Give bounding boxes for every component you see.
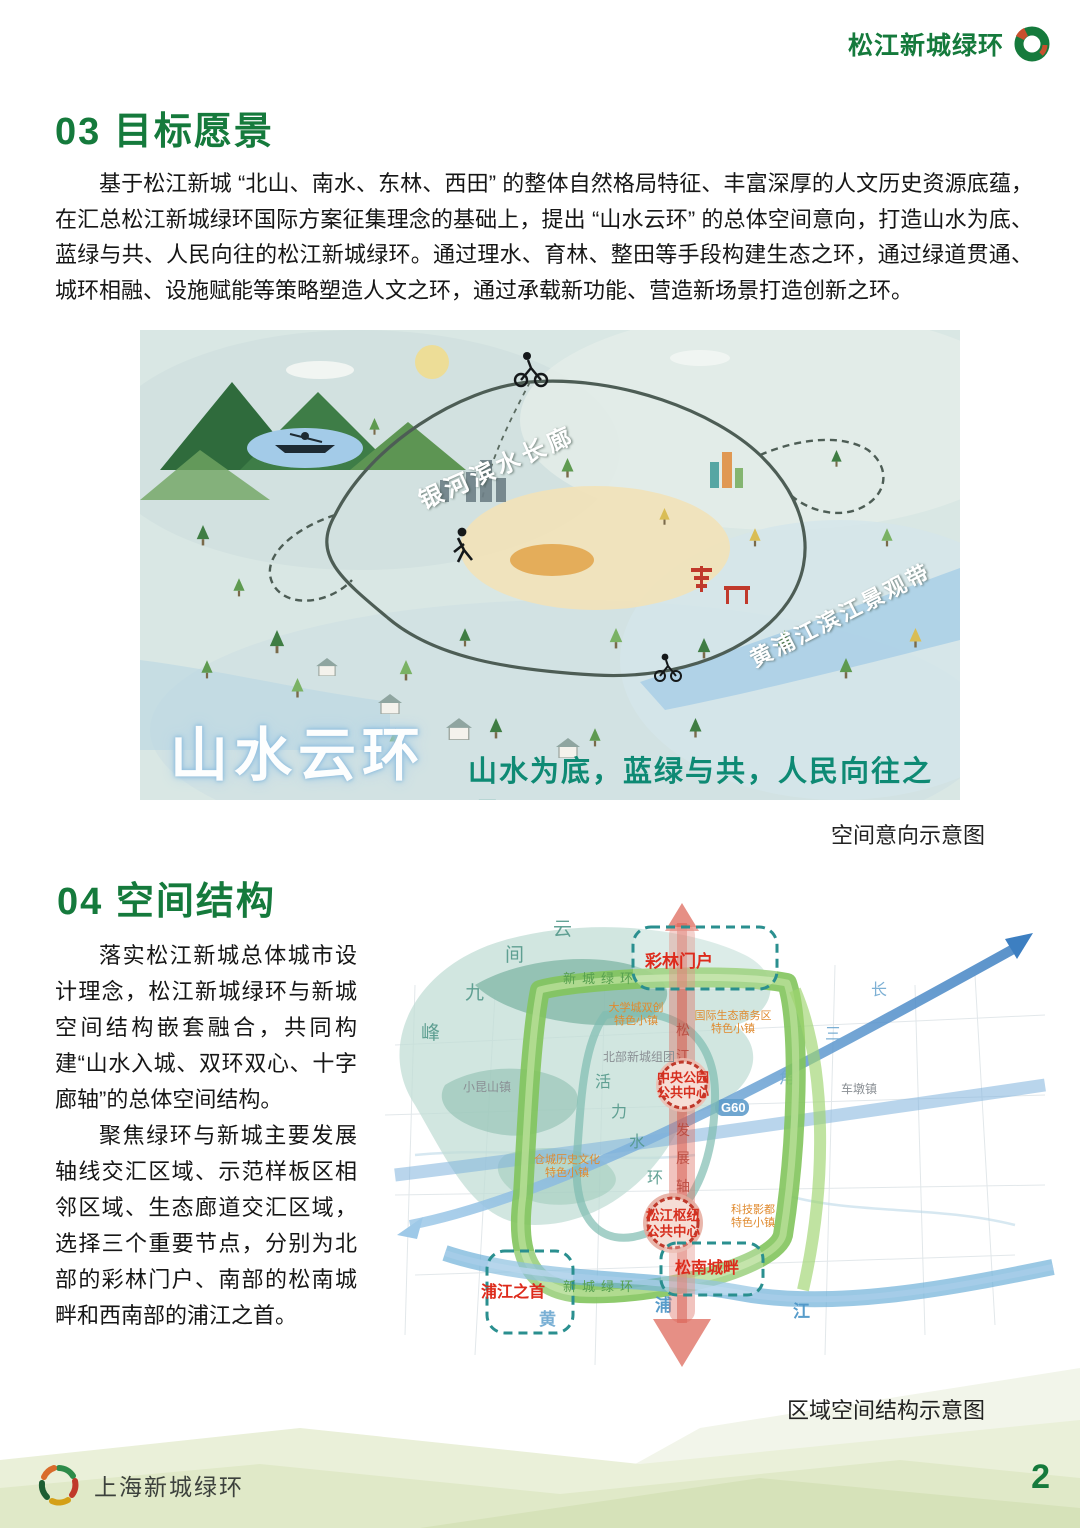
axis-char: 发 bbox=[676, 1122, 690, 1138]
river-char: 江 bbox=[793, 1302, 810, 1321]
node-southwest-label: 浦江之首 bbox=[481, 1282, 545, 1301]
section03-title: 03 目标愿景 bbox=[55, 100, 274, 155]
axis-char: 展 bbox=[676, 1150, 690, 1166]
vision-illustration: 银河滨水长廊 黄浦江滨江景观带 山水云环 山水为底，蓝绿与共，人民向往之环 bbox=[140, 330, 960, 800]
town1-label-1: 大学城双创 bbox=[609, 1000, 664, 1014]
shanghai-ring-logo-icon bbox=[36, 1462, 82, 1508]
mountain-char: 云 bbox=[553, 919, 572, 940]
chedun-label: 车墩镇 bbox=[841, 1081, 877, 1096]
section04-paragraph1: 落实松江新城总体城市设计理念，松江新城绿环与新城空间结构嵌套融合，共同构建“山水… bbox=[55, 938, 357, 1118]
green-ring-logo-icon bbox=[1012, 24, 1052, 64]
footer-brand: 上海新城绿环 bbox=[36, 1462, 244, 1508]
town2-label-2: 特色小镇 bbox=[711, 1021, 755, 1035]
mountain-char: 峰 bbox=[421, 1022, 440, 1044]
node-south-label: 松南城畔 bbox=[675, 1258, 739, 1277]
town3-label-2: 特色小镇 bbox=[545, 1165, 589, 1179]
illustration-caption: 空间意向示意图 bbox=[831, 818, 985, 850]
water-ring-char: 活 bbox=[595, 1073, 611, 1091]
ring-label-top: 新城绿环 bbox=[563, 971, 639, 986]
town4-label-2: 特色小镇 bbox=[731, 1215, 775, 1229]
axis-char: 轴 bbox=[676, 1178, 690, 1194]
delta-char: 长 bbox=[871, 981, 887, 999]
town3-label-1: 仓城历史文化 bbox=[534, 1152, 600, 1166]
town1-label-2: 特色小镇 bbox=[614, 1013, 658, 1027]
town2-label-1: 国际生态商务区 bbox=[695, 1008, 772, 1022]
brand-title: 松江新城绿环 bbox=[848, 26, 1004, 62]
water-ring-char: 水 bbox=[629, 1133, 645, 1151]
map-caption: 区域空间结构示意图 bbox=[787, 1393, 985, 1425]
section04-paragraph2: 聚焦绿环与新城主要发展轴线交汇区域、示范样板区相邻区域、生态廊道交汇区域，选择三… bbox=[55, 1118, 357, 1334]
illustration-title: 山水云环 bbox=[170, 708, 426, 792]
xiaokunshan-label: 小昆山镇 bbox=[463, 1080, 511, 1094]
structure-map-art: 云 间 九 峰 G60 长 三 角 bbox=[355, 895, 1055, 1395]
town4-label-1: 科技影都 bbox=[731, 1202, 775, 1216]
water-ring-char: 环 bbox=[647, 1170, 663, 1187]
hub-label-2: 公共中心 bbox=[646, 1223, 700, 1239]
water-ring-char: 力 bbox=[611, 1103, 627, 1121]
section04-text: 落实松江新城总体城市设计理念，松江新城绿环与新城空间结构嵌套融合，共同构建“山水… bbox=[55, 938, 357, 1334]
node-north-label: 彩林门户 bbox=[644, 951, 713, 971]
section04-title: 04 空间结构 bbox=[57, 870, 276, 925]
ring-label-bottom: 新城绿环 bbox=[563, 1279, 639, 1294]
footer-brand-text: 上海新城绿环 bbox=[94, 1468, 244, 1502]
central-park-node: 中央公园 公共中心 bbox=[656, 1058, 710, 1112]
illustration-tagline: 山水为底，蓝绿与共，人民向往之环 bbox=[468, 748, 960, 800]
district-north-label: 北部新城组团 bbox=[603, 1049, 675, 1064]
central-park-label-2: 公共中心 bbox=[657, 1085, 709, 1100]
axis-char: 松 bbox=[676, 1022, 690, 1038]
central-park-label-1: 中央公园 bbox=[657, 1070, 709, 1085]
mountain-char: 间 bbox=[505, 944, 524, 966]
structure-map: 云 间 九 峰 G60 长 三 角 bbox=[355, 895, 1055, 1395]
page-header: 松江新城绿环 bbox=[848, 24, 1052, 64]
delta-char: 三 bbox=[825, 1026, 841, 1043]
g60-label: G60 bbox=[721, 1100, 746, 1115]
page-number: 2 bbox=[1031, 1458, 1050, 1497]
section03-paragraph-text: 基于松江新城 “北山、南水、东林、西田” 的整体自然格局特征、丰富深厚的人文历史… bbox=[55, 166, 1033, 308]
mountain-char: 九 bbox=[465, 982, 484, 1004]
hub-label-1: 松江枢纽 bbox=[646, 1207, 700, 1223]
report-page: 松江新城绿环 03 目标愿景 基于松江新城 “北山、南水、东林、西田” 的整体自… bbox=[0, 0, 1080, 1528]
section03-paragraph: 基于松江新城 “北山、南水、东林、西田” 的整体自然格局特征、丰富深厚的人文历史… bbox=[55, 166, 1033, 308]
